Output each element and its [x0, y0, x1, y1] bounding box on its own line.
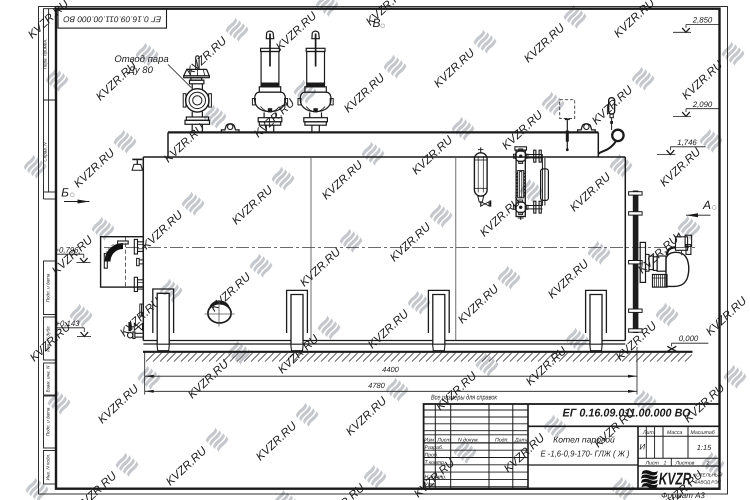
- svg-text:+0,143: +0,143: [55, 319, 80, 328]
- svg-text:ЕГ 0.16.09.011.00.000 ВО: ЕГ 0.16.09.011.00.000 ВО: [63, 14, 162, 23]
- svg-text:Изм: Изм: [424, 438, 434, 444]
- svg-text:Котел паровой: Котел паровой: [553, 435, 615, 445]
- svg-text:4400: 4400: [382, 365, 400, 374]
- svg-text:Лист: Лист: [645, 460, 660, 466]
- svg-text:1,746: 1,746: [677, 138, 697, 147]
- svg-text:Подп. и дата: Подп. и дата: [46, 407, 51, 436]
- svg-text:2: 2: [706, 460, 710, 466]
- svg-text:Масса: Масса: [667, 430, 682, 436]
- svg-text:Все размеры для справок: Все размеры для справок: [431, 394, 498, 402]
- svg-text:ЕГ 0.16.09.011.00.000 ВО: ЕГ 0.16.09.011.00.000 ВО: [563, 408, 691, 420]
- svg-text:Подп.: Подп.: [495, 438, 509, 444]
- svg-text:А: А: [702, 198, 711, 212]
- svg-text:1: 1: [664, 460, 667, 466]
- svg-text:И: И: [639, 442, 645, 451]
- svg-text:Лист: Лист: [436, 438, 451, 444]
- svg-text:Разраб.: Разраб.: [425, 445, 444, 451]
- svg-text:KVZR: KVZR: [659, 470, 692, 489]
- svg-text:N докум.: N докум.: [458, 438, 479, 444]
- svg-text:Перв. примен.: Перв. примен.: [43, 39, 48, 70]
- svg-text:Лит.: Лит.: [642, 430, 655, 436]
- svg-text:Ду 80: Ду 80: [127, 65, 153, 76]
- svg-text:+0,796: +0,796: [54, 245, 79, 254]
- svg-text:Е -1,6-0,9-170- ГЛЖ ( Ж ): Е -1,6-0,9-170- ГЛЖ ( Ж ): [541, 449, 630, 459]
- svg-text:В: В: [372, 16, 380, 30]
- svg-text:Проб.: Проб.: [425, 453, 439, 459]
- svg-text:Т.контр.: Т.контр.: [425, 460, 446, 466]
- svg-text:Утв.: Утв.: [425, 482, 437, 488]
- svg-text:Подп. и дата: Подп. и дата: [46, 273, 51, 302]
- svg-text:1:15: 1:15: [697, 443, 712, 452]
- svg-text:Листов: Листов: [675, 460, 695, 466]
- svg-text:Инв. N дубл.: Инв. N дубл.: [46, 325, 51, 352]
- svg-text:Отвод пара: Отвод пара: [114, 54, 168, 65]
- svg-text:0,000: 0,000: [679, 334, 699, 343]
- svg-text:4780: 4780: [368, 381, 386, 390]
- svg-text:Инв. N подл.: Инв. N подл.: [46, 454, 51, 481]
- svg-text:КОТЕЛЬНЫЙ: КОТЕЛЬНЫЙ: [694, 472, 724, 478]
- svg-text:Масштаб: Масштаб: [691, 430, 716, 436]
- svg-text:Дата: Дата: [514, 438, 529, 444]
- svg-text:Формат А3: Формат А3: [661, 491, 705, 500]
- svg-text:Взам. инв. N: Взам. инв. N: [46, 365, 51, 392]
- svg-text:Н.контр.: Н.контр.: [425, 475, 447, 481]
- svg-text:2,090: 2,090: [692, 100, 713, 109]
- svg-text:Справ. N: Справ. N: [43, 142, 48, 162]
- svg-text:ЗАВОД РЭП: ЗАВОД РЭП: [695, 480, 722, 485]
- svg-text:2,850: 2,850: [692, 16, 713, 25]
- svg-text:Б: Б: [61, 186, 69, 200]
